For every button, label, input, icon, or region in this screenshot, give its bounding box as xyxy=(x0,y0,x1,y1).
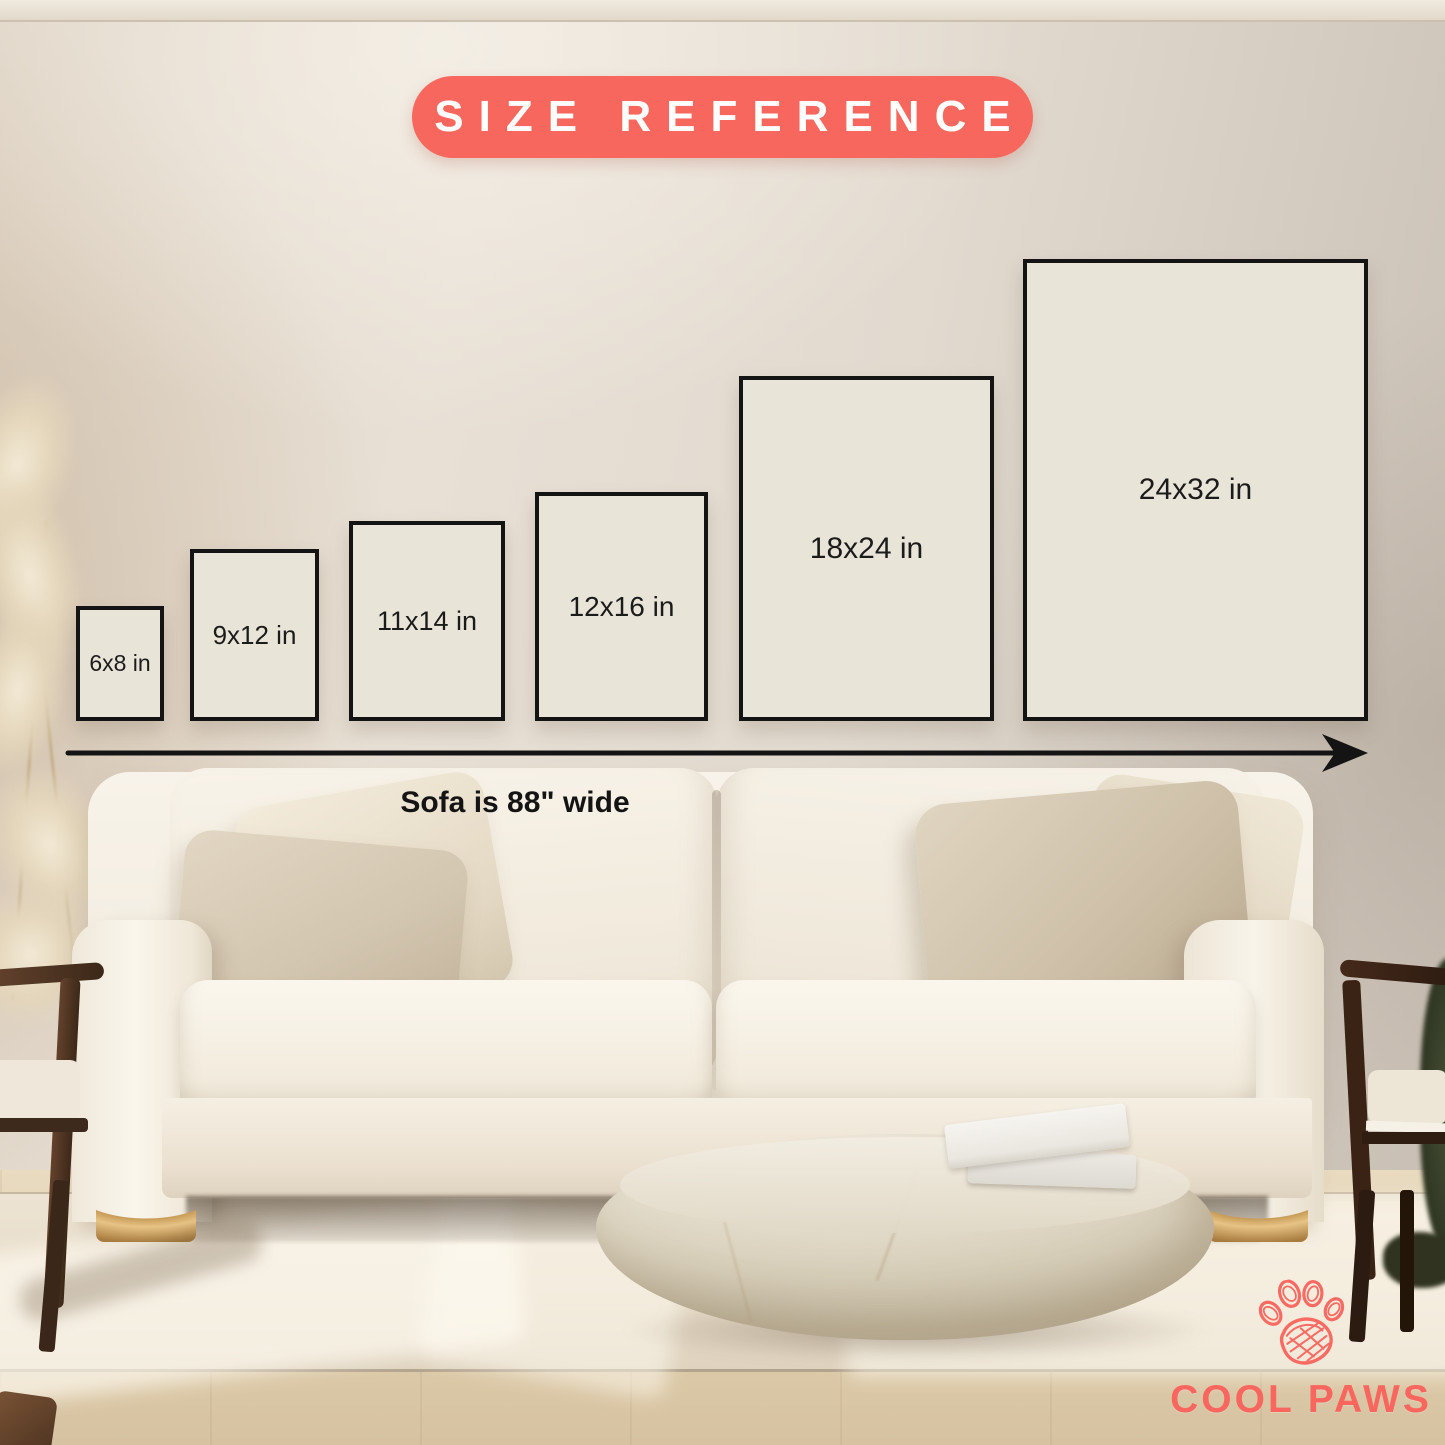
chair-rail xyxy=(0,1118,88,1132)
chair-cushion xyxy=(1368,1070,1445,1124)
chair-rail xyxy=(1362,1132,1445,1144)
chair-cushion xyxy=(0,1060,80,1120)
size-label: 6x8 in xyxy=(89,650,150,677)
size-frame-11x14: 11x14 in xyxy=(349,521,505,721)
size-reference-graphic: SIZE REFERENCE 6x8 in 9x12 in 11x14 in 1… xyxy=(0,0,1445,1445)
size-label: 18x24 in xyxy=(810,532,923,566)
size-label: 9x12 in xyxy=(213,620,297,651)
chair-foot xyxy=(0,1390,58,1445)
size-frame-9x12: 9x12 in xyxy=(190,549,319,721)
brand-logo: COOL PAWS xyxy=(1166,1278,1436,1438)
width-arrow xyxy=(0,731,1445,777)
size-frame-6x8: 6x8 in xyxy=(76,606,164,721)
size-label: 11x14 in xyxy=(377,606,477,637)
sofa-leg xyxy=(96,1194,196,1242)
size-label: 12x16 in xyxy=(569,591,675,623)
size-frame-18x24: 18x24 in xyxy=(739,376,994,721)
size-reference-badge: SIZE REFERENCE xyxy=(412,76,1033,158)
baseboard xyxy=(0,0,1445,22)
size-label: 24x32 in xyxy=(1139,473,1252,507)
sofa-leg xyxy=(1208,1194,1308,1242)
paw-icon xyxy=(1245,1270,1359,1378)
size-frame-12x16: 12x16 in xyxy=(535,492,708,721)
badge-label: SIZE REFERENCE xyxy=(419,92,1025,142)
brand-name: COOL PAWS xyxy=(1166,1378,1436,1422)
size-frame-24x32: 24x32 in xyxy=(1023,259,1368,721)
sofa-width-note: Sofa is 88" wide xyxy=(300,786,730,820)
